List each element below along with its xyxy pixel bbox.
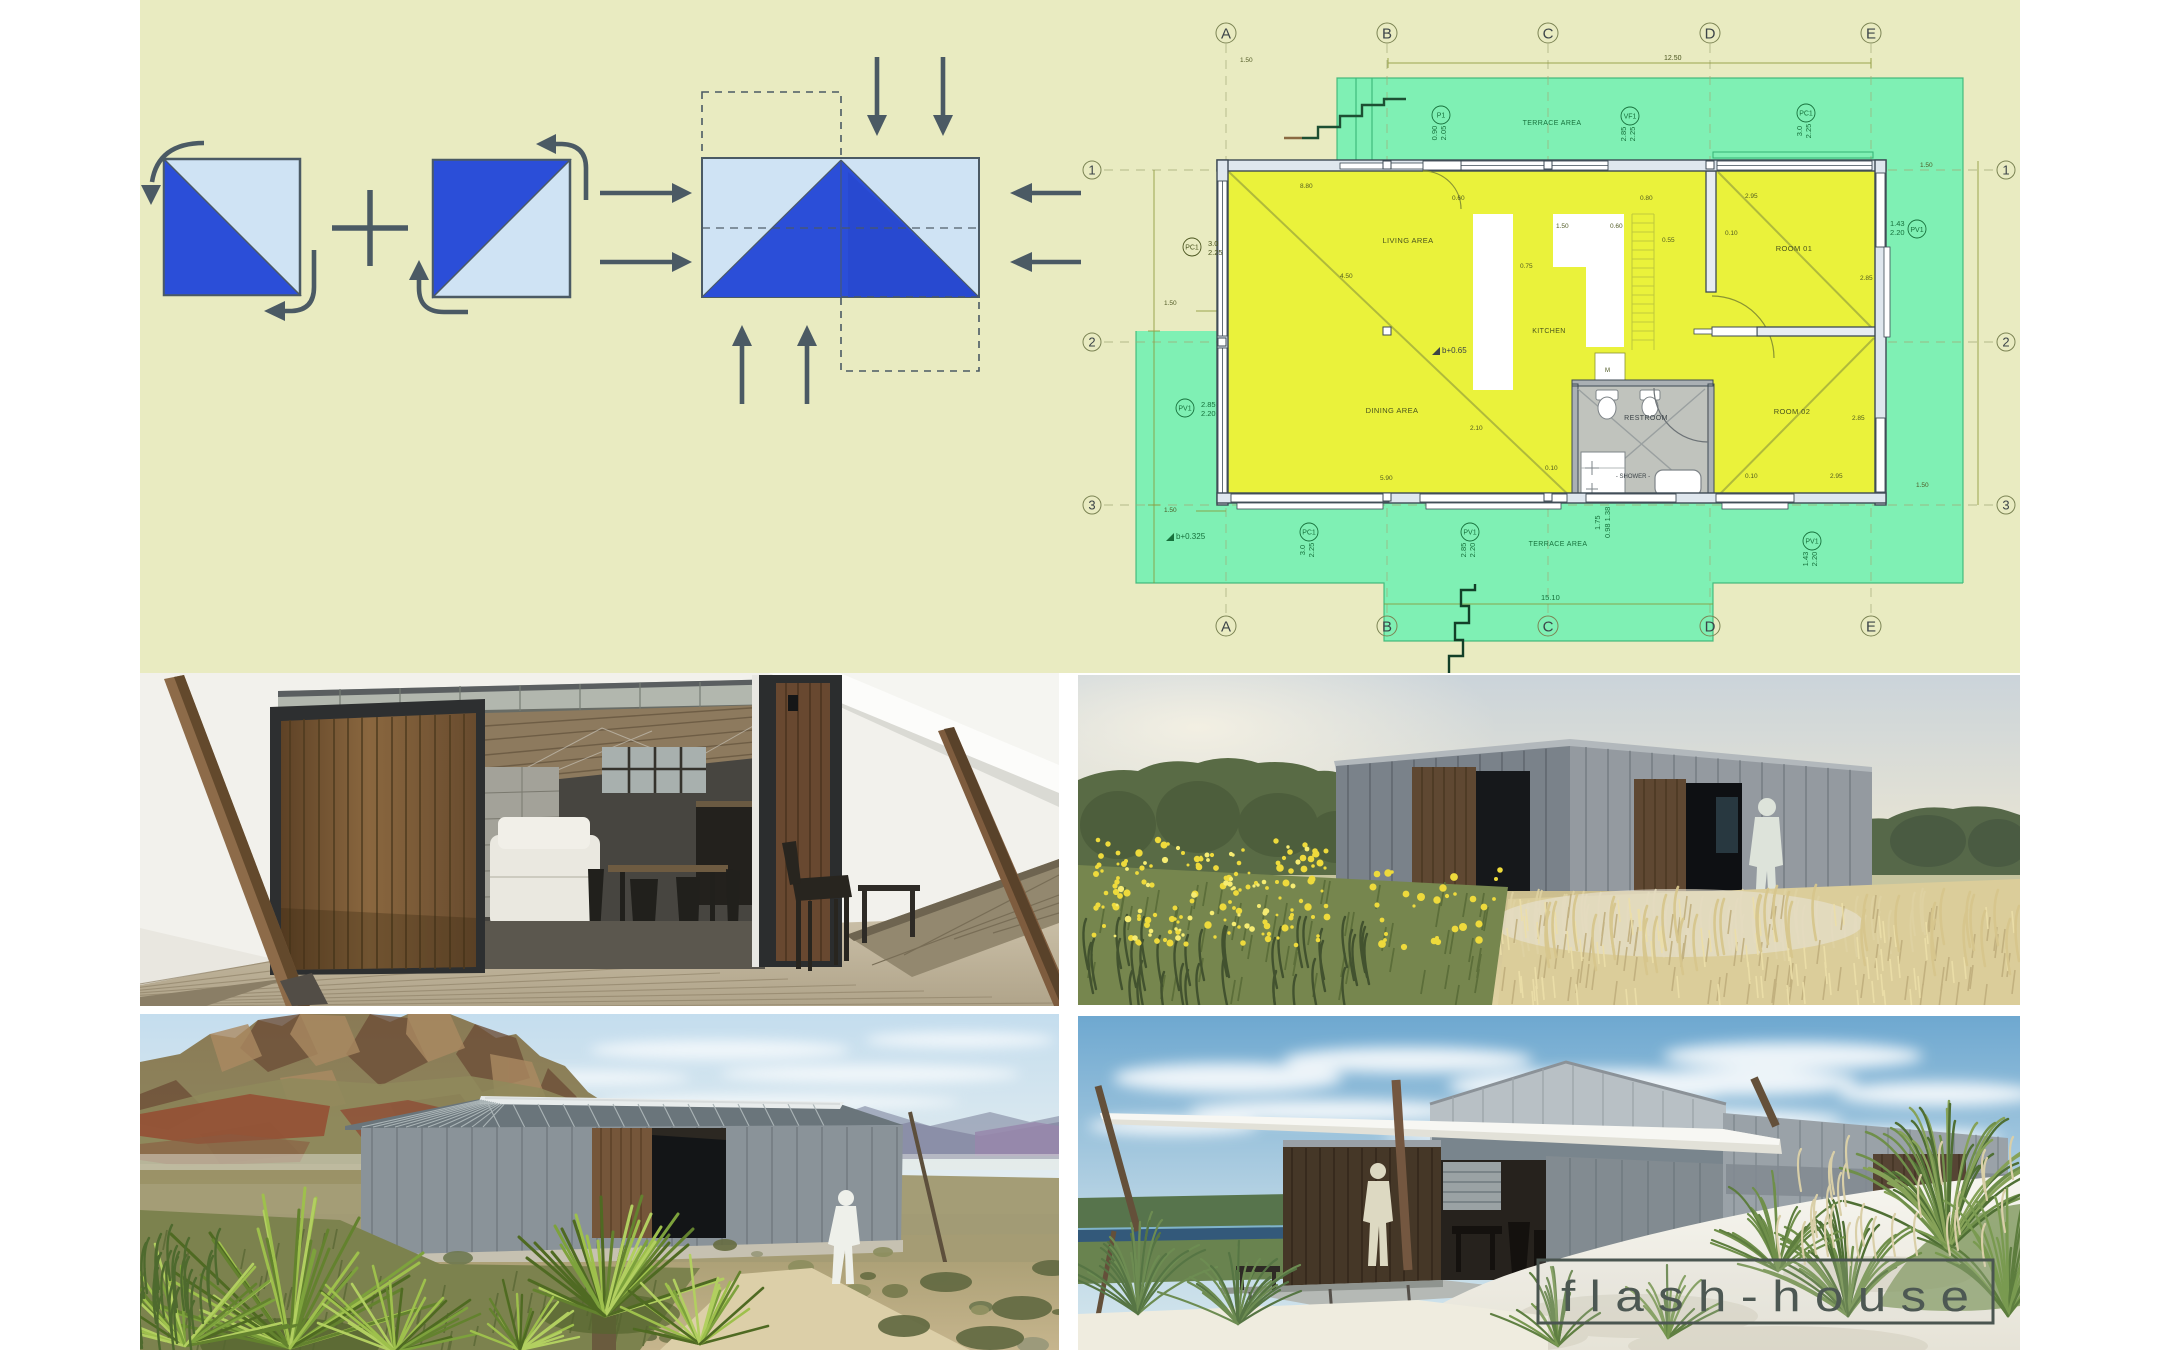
svg-text:b+0.65: b+0.65 [1442, 346, 1467, 355]
svg-text:1: 1 [2002, 163, 2009, 178]
svg-text:3.0: 3.0 [1208, 239, 1218, 248]
svg-text:D: D [1705, 26, 1716, 43]
svg-text:PC1: PC1 [1302, 530, 1316, 537]
svg-text:1.50: 1.50 [1920, 162, 1933, 169]
svg-text:2.85: 2.85 [1201, 400, 1216, 409]
svg-text:E: E [1866, 619, 1876, 636]
svg-text:1.50: 1.50 [1240, 57, 1253, 64]
svg-text:2.25: 2.25 [1307, 543, 1316, 558]
svg-text:5.90: 5.90 [1380, 475, 1393, 482]
svg-text:VF1: VF1 [1624, 114, 1637, 121]
svg-text:PV1: PV1 [1463, 530, 1476, 537]
svg-text:D: D [1705, 619, 1716, 636]
svg-text:0.60: 0.60 [1610, 223, 1623, 230]
svg-text:0.60: 0.60 [1452, 195, 1465, 202]
svg-text:0.98 1.38: 0.98 1.38 [1603, 507, 1612, 538]
svg-text:C: C [1543, 619, 1554, 636]
svg-text:PV1: PV1 [1178, 406, 1191, 413]
svg-text:0.10: 0.10 [1725, 230, 1738, 237]
svg-text:12.50: 12.50 [1664, 55, 1682, 62]
svg-text:2.95: 2.95 [1745, 193, 1758, 200]
svg-text:C: C [1543, 26, 1554, 43]
svg-text:2.20: 2.20 [1468, 543, 1477, 558]
svg-text:ROOM 01: ROOM 01 [1776, 244, 1813, 253]
svg-text:KITCHEN: KITCHEN [1532, 328, 1566, 335]
svg-text:3: 3 [1088, 498, 1095, 513]
svg-text:2.85: 2.85 [1852, 415, 1865, 422]
svg-text:TERRACE AREA: TERRACE AREA [1523, 120, 1582, 127]
svg-text:2.25: 2.25 [1628, 127, 1637, 142]
svg-text:1: 1 [1088, 163, 1095, 178]
svg-text:0.90: 0.90 [1430, 126, 1439, 141]
svg-text:2.85: 2.85 [1860, 275, 1873, 282]
svg-text:2.20: 2.20 [1201, 409, 1216, 418]
svg-text:2.85: 2.85 [1619, 127, 1628, 142]
svg-text:2.05: 2.05 [1439, 126, 1448, 141]
svg-text:3.0: 3.0 [1795, 126, 1804, 136]
svg-text:B: B [1382, 26, 1392, 43]
svg-text:4.50: 4.50 [1340, 273, 1353, 280]
svg-text:2: 2 [2002, 335, 2009, 350]
svg-text:0.75: 0.75 [1520, 263, 1533, 270]
svg-text:M: M [1605, 368, 1610, 374]
svg-text:2.85: 2.85 [1459, 543, 1468, 558]
svg-text:- SHOWER -: - SHOWER - [1616, 474, 1650, 480]
svg-text:0.80: 0.80 [1640, 195, 1653, 202]
svg-text:2.20: 2.20 [1810, 552, 1819, 567]
svg-text:PV1: PV1 [1910, 227, 1923, 234]
svg-text:0.10: 0.10 [1545, 465, 1558, 472]
svg-text:2.20: 2.20 [1890, 228, 1905, 237]
svg-text:1.43: 1.43 [1801, 552, 1810, 567]
svg-text:E: E [1866, 26, 1876, 43]
svg-text:A: A [1221, 619, 1231, 636]
svg-text:2.25: 2.25 [1208, 248, 1223, 257]
svg-text:1.75: 1.75 [1593, 515, 1602, 530]
svg-text:f l a s h - h o u s e: f l a s h - h o u s e [1561, 1272, 1969, 1321]
svg-text:b+0.325: b+0.325 [1176, 532, 1206, 541]
svg-text:LIVING AREA: LIVING AREA [1382, 236, 1433, 245]
svg-text:P1: P1 [1437, 113, 1446, 120]
svg-text:3: 3 [2002, 498, 2009, 513]
svg-text:A: A [1221, 26, 1231, 43]
svg-text:PC1: PC1 [1185, 245, 1199, 252]
svg-text:1.50: 1.50 [1164, 300, 1177, 307]
svg-text:ROOM 02: ROOM 02 [1774, 407, 1811, 416]
svg-text:0.10: 0.10 [1745, 473, 1758, 480]
svg-text:2.95: 2.95 [1830, 473, 1843, 480]
svg-text:PV1: PV1 [1805, 539, 1818, 546]
svg-text:2: 2 [1088, 335, 1095, 350]
svg-text:3.0: 3.0 [1298, 545, 1307, 555]
svg-text:8.80: 8.80 [1300, 183, 1313, 190]
svg-text:15.10: 15.10 [1541, 593, 1560, 602]
svg-text:2.25: 2.25 [1804, 124, 1813, 139]
svg-text:1.43: 1.43 [1890, 219, 1905, 228]
svg-text:DINING AREA: DINING AREA [1366, 406, 1419, 415]
svg-text:1.50: 1.50 [1556, 223, 1569, 230]
svg-text:2.10: 2.10 [1470, 425, 1483, 432]
svg-text:1.50: 1.50 [1916, 482, 1929, 489]
svg-text:1.50: 1.50 [1164, 507, 1177, 514]
svg-text:PC1: PC1 [1799, 111, 1813, 118]
svg-text:RESTROOM: RESTROOM [1624, 415, 1668, 422]
svg-text:0.55: 0.55 [1662, 237, 1675, 244]
svg-text:TERRACE AREA: TERRACE AREA [1529, 541, 1588, 548]
svg-text:B: B [1382, 619, 1392, 636]
